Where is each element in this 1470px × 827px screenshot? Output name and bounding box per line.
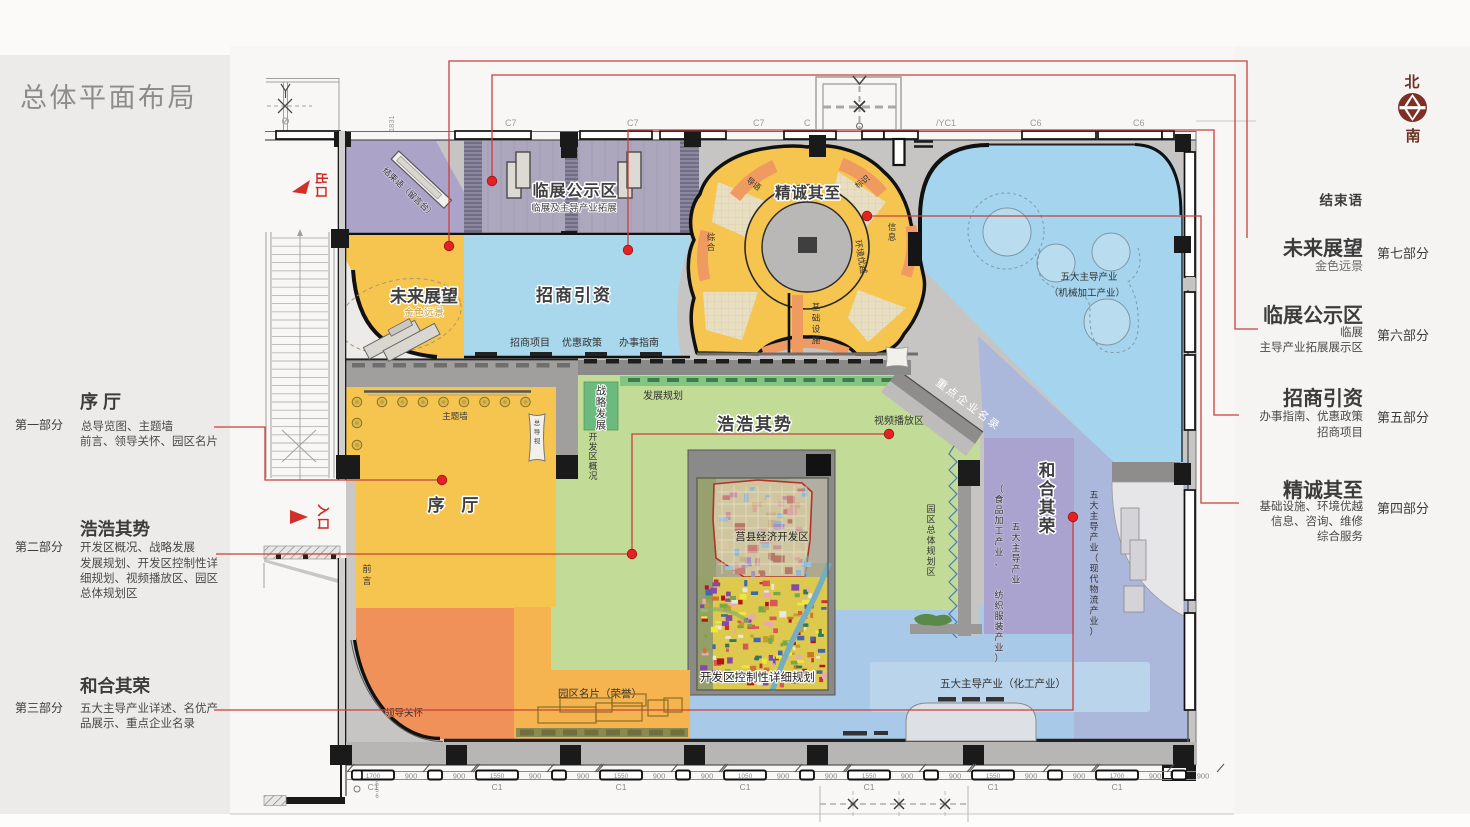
svg-text:900: 900	[901, 772, 914, 781]
svg-text:招商项目: 招商项目	[510, 336, 550, 349]
svg-text:莒县经济开发区: 莒县经济开发区	[735, 530, 809, 543]
svg-text:900: 900	[825, 772, 838, 781]
svg-text:基础设施、环境优越: 基础设施、环境优越	[1260, 499, 1364, 513]
svg-text:开发区控制性详细规划: 开发区控制性详细规划	[700, 670, 815, 684]
svg-text:招商引资: 招商引资	[1283, 386, 1363, 410]
svg-text:金色远景: 金色远景	[404, 306, 444, 319]
svg-text:序 厅: 序 厅	[80, 391, 121, 412]
svg-text:1050: 1050	[738, 773, 753, 780]
svg-text:出口: 出口	[314, 172, 329, 199]
svg-text:优惠政策: 优惠政策	[562, 336, 602, 349]
svg-text:900: 900	[949, 772, 962, 781]
svg-text:1550: 1550	[986, 773, 1001, 780]
svg-text:900: 900	[453, 772, 466, 781]
svg-text:开发区概况、战略发展: 开发区概况、战略发展	[80, 540, 195, 554]
svg-text:入口: 入口	[316, 504, 330, 531]
svg-text:C1: C1	[492, 782, 503, 792]
svg-text:办事指南: 办事指南	[619, 336, 659, 349]
svg-text:精诚其至: 精诚其至	[775, 183, 841, 202]
svg-text:和合其荣: 和合其荣	[1038, 461, 1056, 536]
svg-text:第三部分: 第三部分	[15, 700, 63, 715]
svg-text:基础设施: 基础设施	[812, 302, 821, 345]
svg-text:南: 南	[1405, 127, 1420, 145]
svg-text:主题墙: 主题墙	[442, 411, 468, 421]
svg-text:品展示、重点企业名录: 品展示、重点企业名录	[80, 716, 195, 730]
svg-text:C6: C6	[1030, 118, 1042, 128]
svg-text:结束语: 结束语	[1320, 192, 1364, 208]
svg-text:视频播放区: 视频播放区	[874, 414, 924, 427]
svg-text:未来展望: 未来展望	[1283, 236, 1363, 260]
svg-text:和合其荣: 和合其荣	[80, 676, 150, 696]
svg-text:C1: C1	[1112, 782, 1123, 792]
svg-text:序 厅: 序 厅	[428, 495, 485, 515]
svg-text:五大主导产业详述、名优产: 五大主导产业详述、名优产	[80, 701, 218, 715]
svg-text:900: 900	[777, 772, 790, 781]
svg-text:第六部分: 第六部分	[1377, 328, 1429, 343]
svg-text:总导览图、主题墙: 总导览图、主题墙	[81, 419, 173, 433]
svg-text:1550: 1550	[862, 773, 877, 780]
svg-text:1550: 1550	[490, 773, 505, 780]
svg-text:纺织服装产业）: 纺织服装产业）	[994, 589, 1003, 663]
svg-text:信息: 信息	[888, 222, 897, 242]
svg-text:C: C	[804, 118, 811, 128]
svg-text:C7: C7	[627, 118, 639, 128]
svg-text:主导产业拓展展示区: 主导产业拓展展示区	[1260, 340, 1364, 354]
svg-text:浩浩其势: 浩浩其势	[717, 414, 793, 434]
svg-text:1831: 1831	[387, 115, 396, 132]
svg-text:综合服务: 综合服务	[1317, 529, 1363, 543]
svg-text:1700: 1700	[366, 773, 381, 780]
svg-text:C7: C7	[753, 118, 765, 128]
svg-text:（机械加工产业）: （机械加工产业）	[1049, 287, 1125, 299]
svg-text:精诚其至: 精诚其至	[1283, 478, 1363, 502]
svg-text:五大主导产业（化工产业）: 五大主导产业（化工产业）	[940, 677, 1066, 690]
svg-text:900: 900	[701, 772, 714, 781]
svg-text:900: 900	[529, 772, 542, 781]
svg-text:领导关怀: 领导关怀	[385, 707, 424, 719]
svg-text:总体平面布局: 总体平面布局	[20, 83, 197, 113]
svg-text:前言、领导关怀、园区名片: 前言、领导关怀、园区名片	[80, 434, 218, 448]
svg-text:C1: C1	[616, 782, 627, 792]
svg-text:C7: C7	[505, 118, 517, 128]
svg-text:900: 900	[653, 772, 666, 781]
svg-text:园区总体规划区: 园区总体规划区	[926, 504, 935, 577]
svg-text:第一部分: 第一部分	[15, 417, 63, 432]
svg-text:900: 900	[1025, 772, 1038, 781]
svg-text:临展公示区: 临展公示区	[532, 181, 617, 200]
svg-text:900: 900	[1149, 772, 1162, 781]
svg-text:信息、咨询、维修: 信息、咨询、维修	[1271, 514, 1363, 528]
svg-text:/YC1: /YC1	[936, 118, 956, 128]
svg-text:C1: C1	[740, 782, 751, 792]
svg-text:开发区概况: 开发区概况	[588, 432, 597, 481]
svg-text:五大主导产业（现代物流产业）: 五大主导产业（现代物流产业）	[1089, 490, 1098, 637]
svg-text:综合: 综合	[707, 232, 716, 252]
svg-text:900: 900	[577, 772, 590, 781]
svg-text:C1: C1	[864, 782, 875, 792]
svg-text:发展规划、开发区控制性详: 发展规划、开发区控制性详	[80, 556, 218, 570]
svg-text:五大主导产业: 五大主导产业	[1060, 271, 1117, 283]
svg-text:未来展望: 未来展望	[389, 286, 458, 306]
svg-text:浩浩其势: 浩浩其势	[80, 519, 150, 539]
svg-text:1700: 1700	[1110, 773, 1125, 780]
svg-text:临展: 临展	[1340, 325, 1363, 339]
svg-text:第四部分: 第四部分	[1377, 501, 1429, 516]
svg-text:第二部分: 第二部分	[15, 539, 63, 554]
svg-text:第五部分: 第五部分	[1377, 410, 1429, 425]
svg-text:900: 900	[1073, 772, 1086, 781]
svg-text:北: 北	[1404, 74, 1419, 91]
svg-text:第七部分: 第七部分	[1377, 246, 1429, 261]
svg-text:临展公示区: 临展公示区	[1263, 303, 1363, 327]
svg-text:900: 900	[405, 772, 418, 781]
svg-text:五大主导产业: 五大主导产业	[1011, 522, 1020, 585]
svg-text:（食品加工产业、: （食品加工产业、	[994, 484, 1003, 568]
svg-text:900: 900	[1197, 772, 1210, 781]
svg-text:战略发展: 战略发展	[596, 385, 607, 432]
svg-text:发展规划: 发展规划	[643, 389, 683, 402]
svg-text:招商项目: 招商项目	[1317, 425, 1363, 439]
svg-text:总体规划区: 总体规划区	[80, 586, 138, 600]
svg-text:C1: C1	[988, 782, 999, 792]
svg-text:招商引资: 招商引资	[536, 285, 612, 305]
svg-text:C6: C6	[1133, 118, 1145, 128]
svg-text:临展及主导产业拓展: 临展及主导产业拓展	[531, 202, 617, 214]
svg-text:办事指南、优惠政策: 办事指南、优惠政策	[1260, 409, 1364, 423]
svg-text:总导视: 总导视	[534, 418, 541, 445]
svg-text:1550: 1550	[614, 773, 629, 780]
svg-text:金色远景: 金色远景	[1315, 258, 1363, 273]
svg-text:细规划、视频播放区、园区: 细规划、视频播放区、园区	[80, 571, 218, 585]
